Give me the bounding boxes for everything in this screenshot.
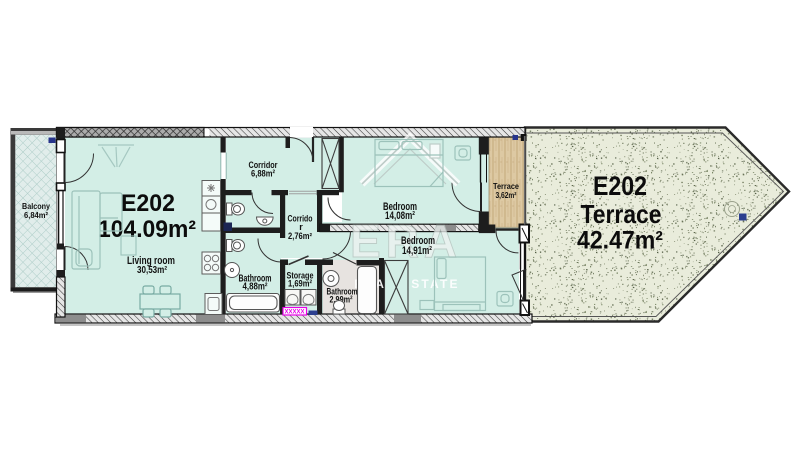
svg-text:1,69m²: 1,69m²	[288, 279, 312, 290]
svg-text:XXXXX: XXXXX	[284, 310, 304, 316]
svg-text:E202: E202	[593, 171, 647, 201]
svg-text:3,62m²: 3,62m²	[496, 191, 517, 200]
svg-text:E202: E202	[121, 190, 175, 217]
svg-text:Terrace: Terrace	[493, 181, 519, 191]
svg-text:14,91m²: 14,91m²	[402, 245, 432, 257]
svg-text:Terrace: Terrace	[581, 199, 662, 229]
svg-text:42.47m²: 42.47m²	[577, 227, 663, 255]
svg-text:2,76m²: 2,76m²	[288, 231, 312, 241]
svg-text:4,88m²: 4,88m²	[243, 282, 269, 293]
svg-text:104.09m²: 104.09m²	[98, 216, 196, 243]
svg-text:30,53m²: 30,53m²	[137, 264, 167, 276]
svg-text:14,08m²: 14,08m²	[385, 210, 415, 222]
svg-text:6,88m²: 6,88m²	[251, 169, 275, 180]
svg-text:6,84m²: 6,84m²	[24, 210, 48, 220]
